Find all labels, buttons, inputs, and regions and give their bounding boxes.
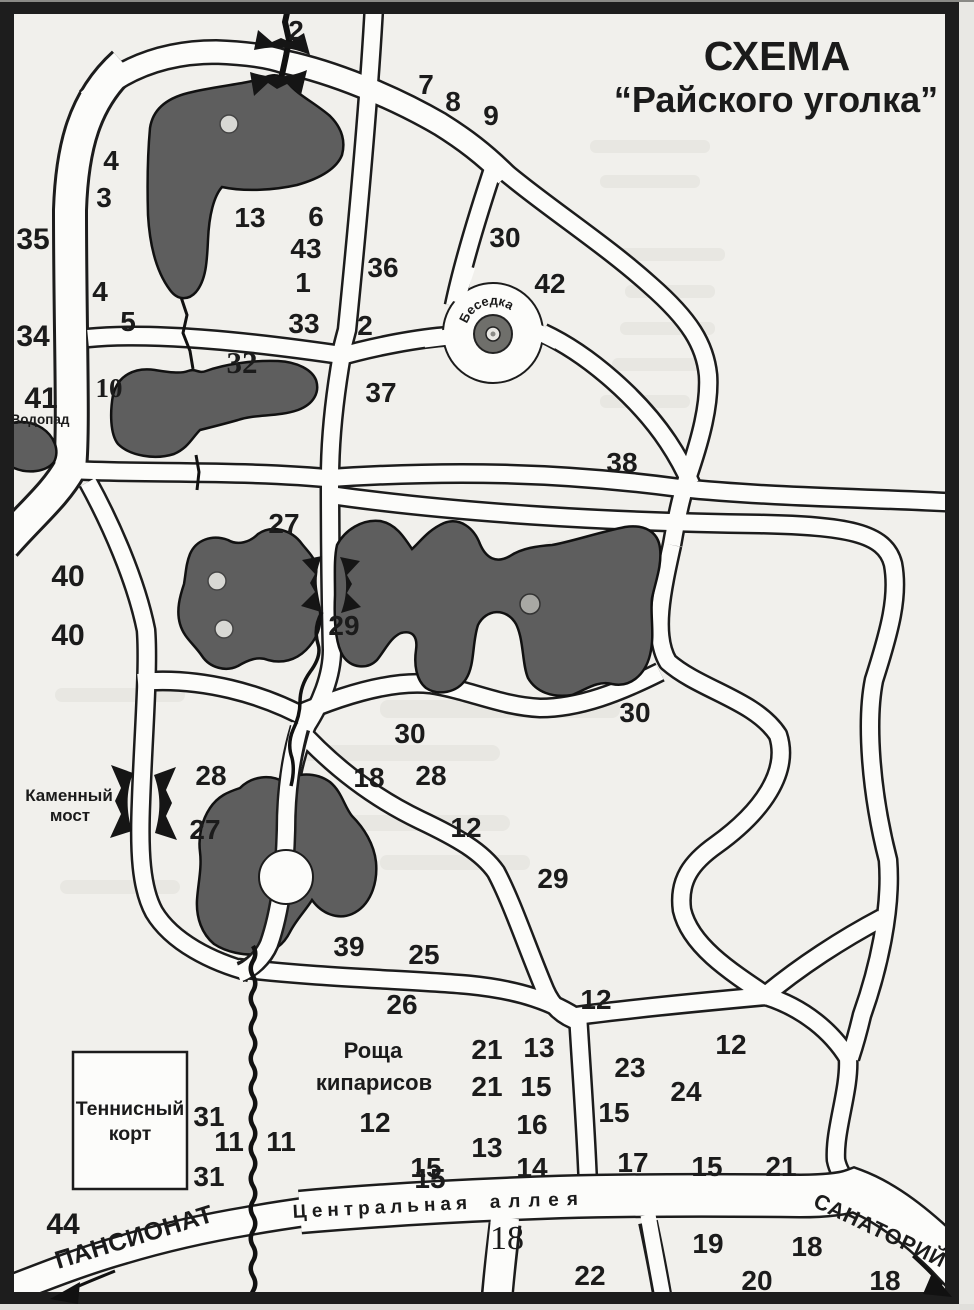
svg-text:23: 23: [614, 1052, 645, 1083]
svg-text:33: 33: [288, 308, 319, 339]
svg-text:44: 44: [46, 1208, 80, 1241]
svg-text:18: 18: [490, 1220, 524, 1257]
svg-text:41: 41: [24, 382, 57, 415]
svg-text:19: 19: [692, 1228, 723, 1259]
svg-text:13: 13: [471, 1132, 502, 1163]
svg-text:Каменный: Каменный: [25, 786, 113, 805]
svg-text:43: 43: [290, 233, 321, 264]
svg-text:11: 11: [214, 1126, 244, 1157]
svg-text:Водопад: Водопад: [11, 412, 70, 427]
svg-text:26: 26: [386, 989, 417, 1020]
svg-text:28: 28: [415, 760, 446, 791]
svg-text:аллея: аллея: [489, 1189, 586, 1213]
svg-text:18: 18: [791, 1231, 822, 1262]
svg-text:24: 24: [670, 1076, 702, 1107]
svg-text:27: 27: [189, 814, 220, 845]
svg-text:30: 30: [489, 222, 520, 253]
svg-text:7: 7: [418, 69, 434, 100]
svg-text:15: 15: [414, 1163, 445, 1194]
svg-text:10: 10: [96, 373, 123, 403]
svg-text:Теннисный: Теннисный: [76, 1098, 185, 1120]
svg-text:25: 25: [408, 939, 439, 970]
svg-text:15: 15: [691, 1151, 722, 1182]
svg-text:мост: мост: [50, 806, 90, 825]
svg-text:40: 40: [51, 619, 84, 652]
svg-text:42: 42: [534, 268, 565, 299]
svg-text:11: 11: [266, 1126, 296, 1157]
svg-text:16: 16: [516, 1109, 547, 1140]
svg-text:17: 17: [617, 1147, 648, 1178]
svg-text:9: 9: [483, 100, 499, 131]
svg-text:1: 1: [295, 267, 311, 298]
svg-text:6: 6: [308, 201, 324, 232]
svg-text:4: 4: [92, 276, 108, 307]
svg-text:13: 13: [234, 202, 265, 233]
svg-text:35: 35: [16, 223, 49, 256]
svg-text:15: 15: [520, 1071, 551, 1102]
svg-text:корт: корт: [109, 1123, 152, 1145]
svg-text:21: 21: [765, 1151, 796, 1182]
svg-text:“Райского уголка”: “Райского уголка”: [614, 79, 938, 120]
svg-text:22: 22: [574, 1260, 605, 1291]
svg-text:12: 12: [715, 1029, 746, 1060]
svg-text:2: 2: [357, 310, 373, 341]
svg-text:СХЕМА: СХЕМА: [704, 33, 851, 79]
svg-text:21: 21: [471, 1034, 502, 1065]
svg-text:28: 28: [195, 760, 226, 791]
svg-text:15: 15: [598, 1097, 629, 1128]
svg-text:4: 4: [103, 145, 119, 176]
svg-text:32: 32: [227, 345, 258, 380]
svg-text:Роща: Роща: [344, 1038, 403, 1063]
svg-text:27: 27: [268, 508, 299, 539]
svg-text:39: 39: [333, 931, 364, 962]
svg-text:30: 30: [394, 718, 425, 749]
svg-text:29: 29: [328, 610, 359, 641]
svg-text:18: 18: [353, 762, 384, 793]
svg-text:34: 34: [16, 320, 50, 353]
svg-text:37: 37: [365, 377, 396, 408]
svg-text:12: 12: [450, 812, 481, 843]
svg-text:30: 30: [619, 697, 650, 728]
svg-text:12: 12: [359, 1107, 390, 1138]
svg-text:18: 18: [869, 1265, 900, 1296]
svg-text:12: 12: [580, 984, 611, 1015]
svg-text:кипарисов: кипарисов: [316, 1070, 432, 1095]
svg-text:21: 21: [471, 1071, 502, 1102]
svg-text:8: 8: [445, 86, 461, 117]
svg-text:14: 14: [516, 1152, 548, 1183]
svg-text:13: 13: [523, 1032, 554, 1063]
svg-text:20: 20: [741, 1265, 772, 1296]
svg-text:38: 38: [606, 447, 637, 478]
svg-text:29: 29: [537, 863, 568, 894]
svg-text:5: 5: [120, 306, 136, 337]
svg-text:40: 40: [51, 560, 84, 593]
svg-text:2: 2: [288, 15, 304, 46]
svg-text:36: 36: [367, 252, 398, 283]
svg-text:3: 3: [96, 182, 112, 213]
svg-text:31: 31: [193, 1161, 224, 1192]
